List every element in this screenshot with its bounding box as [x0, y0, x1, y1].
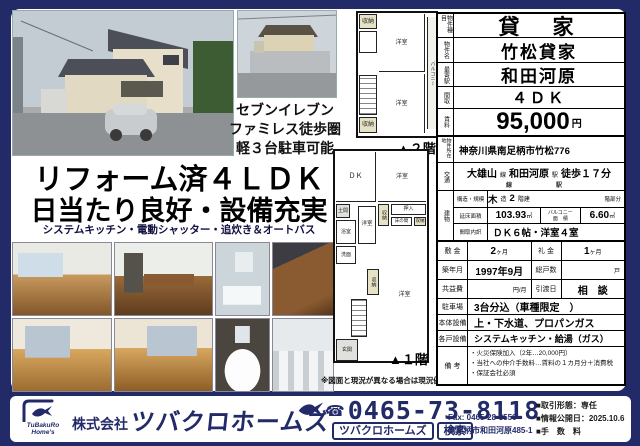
- kitchen-photo: [114, 242, 213, 316]
- room-label: 収納: [367, 269, 379, 295]
- biko-line-2: ・当社への仲介手数料…賃料の１カ月分＋消費税: [470, 360, 622, 368]
- access-station-unit: 駅: [552, 170, 558, 179]
- spec-value-address: 神奈川県南足柄市竹松776: [454, 137, 624, 162]
- room-label: 洋室: [358, 206, 376, 244]
- kakudo-value: システムキッチン・給湯（ガス）: [468, 331, 624, 346]
- label-area: 延床面積: [454, 208, 488, 224]
- built-value: 1997年9月: [468, 261, 531, 279]
- reikin-unit: ヶ月: [590, 247, 602, 256]
- access-line: 大雄山: [467, 165, 497, 180]
- deal-info-block: ■取引形態：専任 ■情報公開日：2025.10.6 ■手 数 料: [536, 399, 624, 438]
- spec-label-type: 物件種目: [438, 14, 454, 37]
- room-label: ＤＫ: [336, 152, 376, 202]
- floor1-caption: ▲１階: [389, 349, 428, 368]
- footer-bar: TuBakuRo Home's 株式会社 ツバクロホームズ ☎ 0465-73-…: [8, 394, 633, 444]
- headline-sub: システムキッチン・電動シャッター・追炊き＆オートバス: [11, 222, 347, 237]
- balcony-unit: ㎡: [609, 211, 615, 220]
- neighborhood-illustration: [238, 11, 337, 98]
- balcony-label-2: 面 積: [553, 216, 568, 222]
- poi-note: セブンイレブン ファミレス徒歩圏 軽３台駐車可能: [225, 101, 345, 157]
- room-label: 洋室: [379, 14, 425, 72]
- spec-label-access: 交通: [438, 163, 454, 190]
- label-structure: 構造・規模: [454, 191, 488, 207]
- units-unit: 戸: [614, 266, 620, 275]
- label-units: 総戸数: [532, 261, 562, 279]
- structure-value: 木: [488, 192, 498, 206]
- room-label: 洋室: [379, 74, 425, 133]
- room-label: 押入: [391, 204, 426, 215]
- room-label: 洋室: [383, 246, 426, 344]
- spec-label-madori: 間取: [438, 87, 454, 108]
- room-label: 収納: [359, 14, 377, 29]
- poi-line-1: セブンイレブン: [225, 101, 345, 120]
- room-label: 洋室: [378, 152, 426, 202]
- deal-type: ■取引形態：専任: [536, 399, 624, 412]
- spec-label-building: 建物: [438, 191, 454, 240]
- structure-unit: 造: [501, 194, 507, 203]
- madori-detail-value: ＤＫ６帖・洋室４室: [488, 224, 624, 240]
- swallow-icon: [298, 400, 324, 425]
- poi-line-2: ファミレス徒歩圏: [225, 120, 345, 139]
- floorplan-1f: ＤＫ 洋室 土間 浴室 洗面 洋室 収納 押入 床の間 収納 収納 洋室 玄関: [333, 149, 429, 363]
- stairs-1f: [351, 299, 367, 337]
- spec-value-type: 貸 家: [454, 14, 624, 37]
- room-label: 床の間: [391, 217, 412, 226]
- label-kakudo: 各戸設備: [438, 331, 468, 346]
- stairs-2f: [359, 75, 377, 115]
- spec-value-rent: 95,000: [496, 108, 569, 136]
- label-setsubi: 本体設備: [438, 315, 468, 330]
- floor-part-label: 階部分: [604, 195, 624, 203]
- living-room-photo: [12, 242, 112, 316]
- spec-label-address: 物件所在地: [438, 137, 454, 162]
- logo-line-2: Home's: [14, 429, 72, 436]
- room-label: 洗面: [336, 246, 356, 264]
- access-line-unit: 線: [500, 170, 506, 179]
- house-illustration: [13, 11, 234, 156]
- flyer-panel: セブンイレブン ファミレス徒歩圏 軽３台駐車可能 リフォーム済４ＬＤＫ 日当たり…: [8, 6, 629, 394]
- room-label: バルコニー: [427, 17, 436, 129]
- room-wc: [359, 31, 377, 53]
- label-reikin: 礼 金: [532, 242, 562, 260]
- label-built: 築年月: [438, 261, 468, 279]
- rent-unit: 円: [572, 115, 582, 130]
- access-station: 和田河原: [509, 165, 549, 180]
- spec-value-name: 竹松貸家: [454, 38, 624, 62]
- bedroom-photo-2: [114, 318, 213, 392]
- plan-note: ※図面と現況が異なる場合は現況優先: [321, 375, 448, 386]
- biko-notes: ・火災保険加入（2年…20,000円） ・当社への仲介手数料…賃料の１カ月分＋消…: [468, 347, 624, 384]
- floors-unit: 階建: [518, 194, 530, 203]
- building-group: 構造・規模 木 造 2 階建 階部分 延床面積 103.93㎡ バルコニー面 積…: [454, 191, 624, 240]
- hikiwatashi-value: 相 談: [562, 280, 625, 298]
- spec-label-name: 物件名: [438, 38, 454, 62]
- shikikin-unit: ヶ月: [496, 247, 508, 256]
- room-label: 収納: [378, 204, 389, 226]
- spec-value-madori: ４ＤＫ: [454, 87, 624, 108]
- biko-line-1: ・火災保険加入（2年…20,000円）: [470, 350, 622, 358]
- spec-table: 物件種目 貸 家 物件名 竹松貸家 最寄駅 和田河原 間取 ４ＤＫ 賃料 95,…: [436, 12, 626, 386]
- publish-date: ■情報公開日：2025.10.6: [536, 412, 624, 425]
- setsubi-value: 上・下水道、プロパンガス: [468, 315, 624, 330]
- floorplan-2f: 収納 収納 洋室 洋室 バルコニー: [356, 11, 438, 138]
- spec-value-station: 和田河原: [454, 63, 624, 86]
- area-value: 103.93: [496, 210, 527, 221]
- spec-label-rent: 賃料: [438, 109, 454, 135]
- logo-line-1: TuBakuRo: [14, 422, 72, 429]
- access-walk: 徒歩１７分: [561, 165, 611, 180]
- label-shikikin: 敷 金: [438, 242, 468, 260]
- label-hikiwatashi: 引渡日: [532, 280, 562, 298]
- logo-text: TuBakuRo Home's: [14, 422, 72, 436]
- room-label: 収納: [359, 117, 377, 133]
- company-prefix: 株式会社: [72, 414, 128, 437]
- label-kyoueki: 共益費: [438, 280, 468, 298]
- office-address: 南足柄市和田河原485-1: [448, 425, 532, 436]
- biko-line-3: ・保証会社必須: [470, 370, 622, 378]
- label-biko: 備 考: [438, 347, 468, 384]
- spec-label-station: 最寄駅: [438, 63, 454, 86]
- toilet-photo: [215, 318, 270, 392]
- area-unit: ㎡: [526, 211, 532, 220]
- balcony-value: 6.60: [590, 210, 609, 221]
- exterior-photo-main: [12, 10, 234, 156]
- label-madori-detail: 間取内訳: [454, 224, 488, 240]
- room-label: 土間: [336, 204, 350, 218]
- access-line-unit2: 線: [506, 180, 512, 189]
- floors-value: 2: [510, 193, 515, 204]
- room-label: 収納: [414, 217, 426, 226]
- label-parking: 駐車場: [438, 299, 468, 314]
- fax-number: Fax: 0465-28-3556: [448, 413, 517, 422]
- fee-label: ■手 数 料: [536, 425, 624, 438]
- parking-value: 3台分込（車種限定 ）: [468, 299, 624, 314]
- room-label: 浴室: [336, 220, 356, 244]
- hallway-photo: [272, 242, 334, 316]
- room-label: 玄関: [336, 339, 358, 361]
- kyoueki-unit: 円/月: [513, 285, 527, 294]
- interior-photo-grid: [12, 242, 334, 392]
- bedroom-photo-1: [12, 318, 112, 392]
- exterior-photo-secondary: [237, 10, 337, 98]
- bathroom-photo: [215, 242, 270, 316]
- company-name-block: 株式会社 ツバクロホームズ: [72, 402, 330, 437]
- access-station-unit2: 駅: [556, 180, 562, 189]
- search-keyword-box: ツバクロホームズ: [332, 422, 434, 440]
- phone-icon: ☎: [326, 402, 345, 420]
- spec-value-access: 大雄山 線 和田河原 駅 徒歩１７分 線 駅: [454, 163, 624, 190]
